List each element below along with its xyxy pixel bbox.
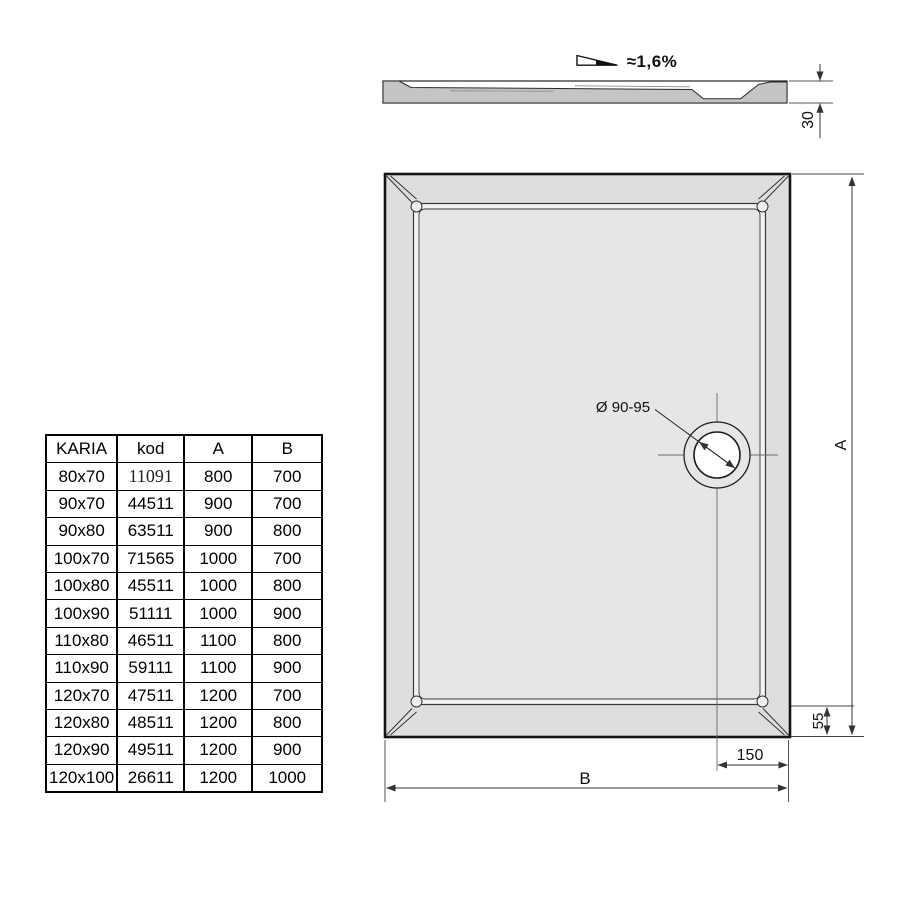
table-cell: 800 bbox=[252, 709, 322, 736]
table-cell: 100x90 bbox=[46, 600, 117, 627]
table-cell: 49511 bbox=[117, 737, 184, 764]
table-cell: 100x80 bbox=[46, 572, 117, 599]
table-cell: 90x70 bbox=[46, 490, 117, 517]
table-cell: 900 bbox=[252, 737, 322, 764]
table-cell: 1200 bbox=[184, 682, 252, 709]
table-row: 90x7044511900700 bbox=[46, 490, 322, 517]
table-cell: 1000 bbox=[184, 572, 252, 599]
table-cell: 1200 bbox=[184, 709, 252, 736]
table-row: 120x90495111200900 bbox=[46, 737, 322, 764]
table-cell: 800 bbox=[184, 463, 252, 490]
table-cell: 700 bbox=[252, 490, 322, 517]
table-row: 120x70475111200700 bbox=[46, 682, 322, 709]
table-cell: 700 bbox=[252, 463, 322, 490]
table-cell: 900 bbox=[184, 490, 252, 517]
column-header: KARIA bbox=[46, 435, 117, 463]
table-row: 100x90511111000900 bbox=[46, 600, 322, 627]
table-cell: 1200 bbox=[184, 737, 252, 764]
size-table: KARIAkodAB 80x701109180070090x7044511900… bbox=[45, 434, 323, 793]
drain-diameter-label: Ø 90-95 bbox=[592, 398, 654, 416]
slope-percentage-label: ≈1,6% bbox=[616, 51, 688, 71]
technical-drawing-page: ≈1,6% 30 Ø 90-95 A B 150 55 KARIAkodAB 8… bbox=[0, 0, 900, 899]
table-cell: 120x70 bbox=[46, 682, 117, 709]
dimension-b-label: B bbox=[570, 768, 600, 788]
table-cell: 90x80 bbox=[46, 518, 117, 545]
table-cell: 46511 bbox=[117, 627, 184, 654]
table-cell: 110x80 bbox=[46, 627, 117, 654]
table-cell: 800 bbox=[252, 627, 322, 654]
table-cell: 900 bbox=[252, 655, 322, 682]
table-row: 80x7011091800700 bbox=[46, 463, 322, 490]
table-cell: 1000 bbox=[184, 545, 252, 572]
table-cell: 71565 bbox=[117, 545, 184, 572]
table-cell: 44511 bbox=[117, 490, 184, 517]
table-header-row: KARIAkodAB bbox=[46, 435, 322, 463]
table-cell: 700 bbox=[252, 682, 322, 709]
table-cell: 48511 bbox=[117, 709, 184, 736]
column-header: A bbox=[184, 435, 252, 463]
table-cell: 900 bbox=[252, 600, 322, 627]
profile-view bbox=[383, 56, 833, 139]
table-cell: 120x90 bbox=[46, 737, 117, 764]
table-row: 110x90591111100900 bbox=[46, 655, 322, 682]
table-row: 100x80455111000800 bbox=[46, 572, 322, 599]
column-header: B bbox=[252, 435, 322, 463]
table-cell: 1000 bbox=[252, 764, 322, 792]
table-cell: 1100 bbox=[184, 655, 252, 682]
table-cell: 47511 bbox=[117, 682, 184, 709]
table-cell: 1000 bbox=[184, 600, 252, 627]
table-row: 90x8063511900800 bbox=[46, 518, 322, 545]
table-cell: 800 bbox=[252, 572, 322, 599]
table-cell: 80x70 bbox=[46, 463, 117, 490]
dimension-55-label: 55 bbox=[803, 706, 833, 736]
table-cell: 11091 bbox=[117, 463, 184, 490]
table-cell: 800 bbox=[252, 518, 322, 545]
table-row: 100x70715651000700 bbox=[46, 545, 322, 572]
table-cell: 100x70 bbox=[46, 545, 117, 572]
table-body: 80x701109180070090x704451190070090x80635… bbox=[46, 463, 322, 792]
dimension-a-label: A bbox=[825, 428, 859, 462]
table-row: 110x80465111100800 bbox=[46, 627, 322, 654]
table-cell: 45511 bbox=[117, 572, 184, 599]
table-cell: 900 bbox=[184, 518, 252, 545]
table-cell: 120x100 bbox=[46, 764, 117, 792]
column-header: kod bbox=[117, 435, 184, 463]
table-row: 120x1002661112001000 bbox=[46, 764, 322, 792]
plan-view bbox=[385, 174, 790, 771]
height-30-label: 30 bbox=[792, 103, 826, 137]
table-cell: 1200 bbox=[184, 764, 252, 792]
dimension-150-label: 150 bbox=[725, 747, 775, 765]
table-cell: 110x90 bbox=[46, 655, 117, 682]
table-cell: 59111 bbox=[117, 655, 184, 682]
table-cell: 51111 bbox=[117, 600, 184, 627]
table-row: 120x80485111200800 bbox=[46, 709, 322, 736]
table-cell: 26611 bbox=[117, 764, 184, 792]
table-cell: 63511 bbox=[117, 518, 184, 545]
table-cell: 700 bbox=[252, 545, 322, 572]
table-cell: 120x80 bbox=[46, 709, 117, 736]
table-cell: 1100 bbox=[184, 627, 252, 654]
